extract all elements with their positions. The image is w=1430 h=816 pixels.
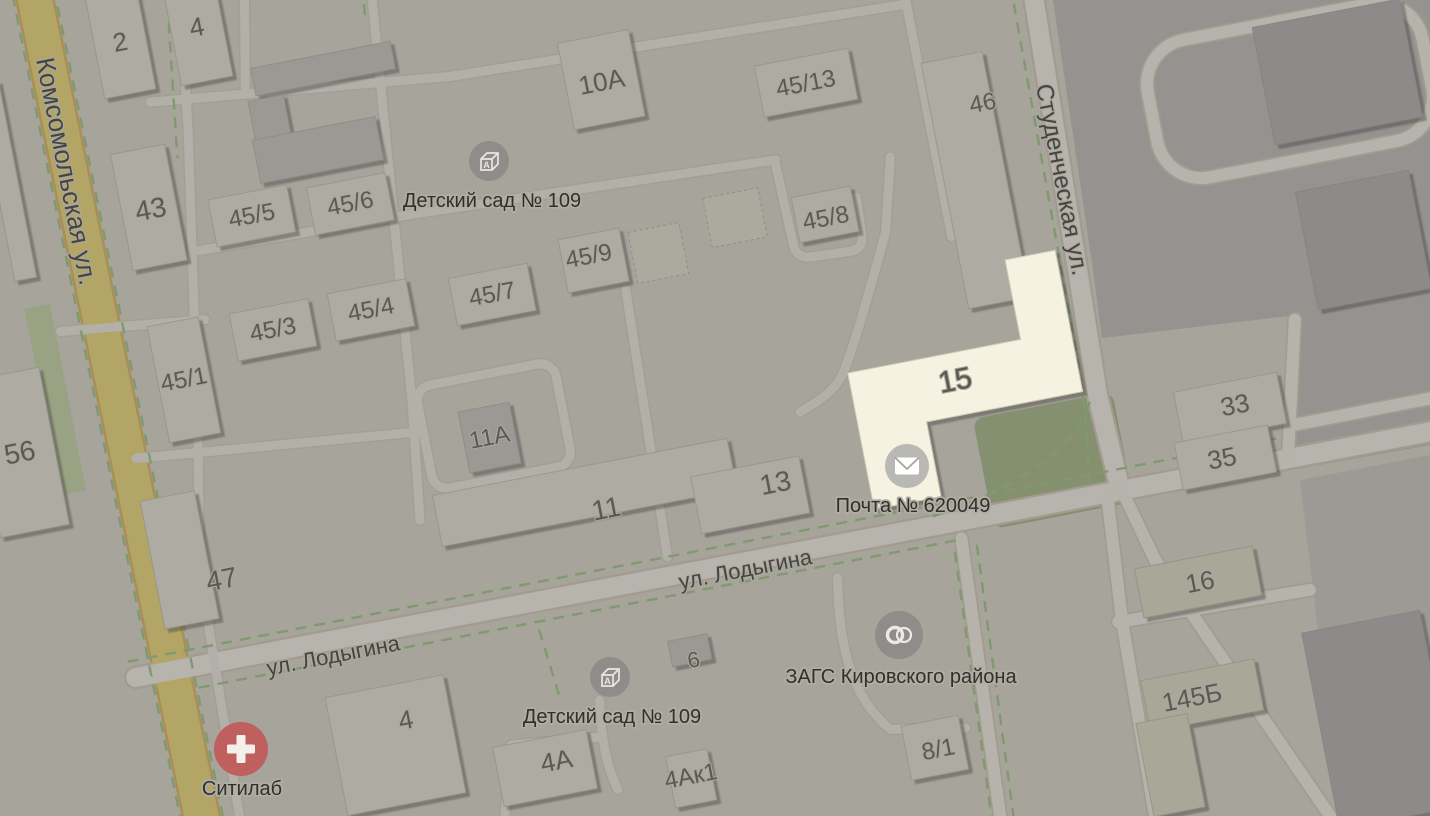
building-label: 46 (967, 88, 998, 120)
building-label: 43 (132, 191, 168, 227)
building-label: 4А (538, 743, 576, 779)
poi-label[interactable]: Детский сад № 109 (523, 706, 701, 728)
poi-label[interactable]: ЗАГС Кировского района (785, 666, 1017, 688)
building-label: 11 (589, 491, 623, 527)
building-label: 16 (1183, 564, 1217, 599)
fenced-lot (628, 222, 689, 283)
poi-label[interactable]: Детский сад № 109 (403, 190, 581, 212)
building-label: 13 (757, 465, 793, 501)
building-4-bottom[interactable] (325, 675, 466, 816)
svg-text:А: А (604, 676, 611, 686)
building-label-selected: 15 (936, 361, 975, 400)
fenced-lot (703, 188, 768, 248)
building-label: 47 (203, 561, 239, 597)
poi-label[interactable]: Почта № 620049 (836, 495, 991, 517)
map-canvas[interactable]: 2 4 10А 45/13 46 43 45/5 45/6 45/9 45/8 … (0, 0, 1430, 816)
building-label: 56 (1, 434, 37, 470)
svg-text:А: А (483, 160, 490, 170)
poi-label[interactable]: Ситилаб (202, 778, 282, 800)
wedding-rings-icon[interactable] (875, 611, 923, 659)
building-label: 33 (1218, 387, 1252, 422)
building-label: 35 (1205, 441, 1239, 476)
envelope-glyph (895, 458, 919, 475)
industrial-building[interactable] (1296, 170, 1430, 310)
